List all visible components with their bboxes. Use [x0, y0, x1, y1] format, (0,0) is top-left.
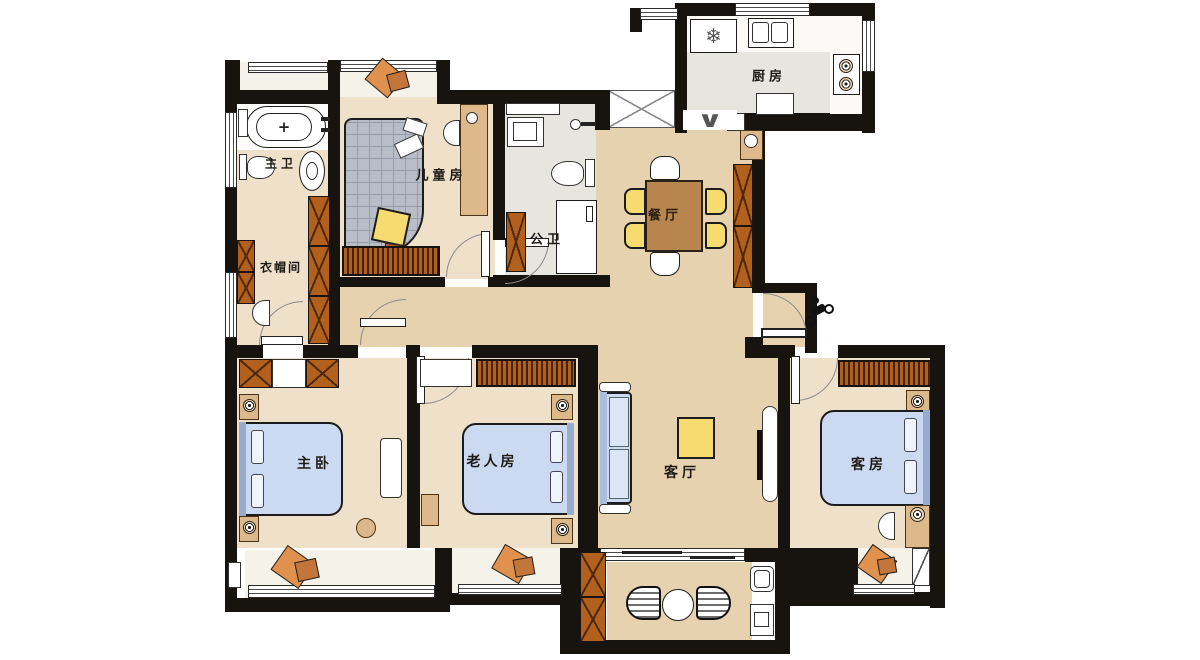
snowflake-icon: ❄ [705, 24, 722, 48]
desk-lamp-icon [466, 112, 478, 124]
kids-wardrobe [342, 246, 440, 276]
room-label-guest-room: 客房 [851, 454, 887, 474]
kids-bed-pillow [371, 207, 411, 247]
dining-chair [650, 252, 680, 276]
balcony-cabinet [580, 552, 606, 597]
sofa-armrest [599, 504, 631, 514]
stool [356, 518, 376, 538]
wardrobe-cabinet [308, 296, 330, 344]
bed-headboard [239, 422, 246, 516]
bay-cushion [877, 557, 898, 576]
room-label-public-bath: 公卫 [530, 229, 564, 248]
window-closet [225, 272, 237, 338]
wall-segment [493, 103, 505, 240]
room-label-kitchen: 厨房 [752, 66, 786, 85]
wardrobe-cabinet [308, 246, 330, 296]
floor-plan: ∨ + ❄ [0, 0, 1200, 660]
balcony-table [662, 589, 694, 621]
closet-door-leaf [261, 336, 303, 345]
scooter-icon [806, 316, 816, 326]
guest-bay-fixed-glass [912, 548, 930, 586]
tv-icon [757, 430, 762, 480]
bathtub-basin: + [256, 113, 312, 141]
wall-segment [790, 548, 858, 594]
burner-icon [839, 59, 853, 73]
room-label-living: 客厅 [664, 462, 700, 482]
lamp-icon [556, 523, 569, 536]
washer-drum [754, 570, 770, 588]
wall-segment [578, 345, 598, 548]
wall-segment [437, 60, 450, 104]
window-kitchen-top [735, 3, 810, 16]
shower-control [586, 206, 593, 222]
tv-console [762, 406, 778, 502]
bath-shelf [238, 109, 248, 137]
lamp-icon [243, 521, 256, 534]
wall-segment [838, 345, 945, 358]
sink-basin [513, 122, 537, 141]
wall-segment [560, 548, 580, 648]
bed-pillow [251, 430, 264, 464]
window-master-bay [248, 585, 435, 598]
coffee-table [677, 417, 715, 459]
wardrobe-cabinet [306, 359, 339, 388]
room-label-master-bath: 主卫 [265, 155, 297, 172]
fridge-icon: ❄ [690, 19, 737, 53]
bath-cabinet [506, 212, 526, 272]
bay-cushion [513, 556, 536, 577]
dresser [380, 438, 402, 498]
guest-door-leaf [791, 356, 800, 404]
radiator [228, 562, 241, 588]
master-door-leaf [360, 318, 406, 327]
sofa-cushion [609, 449, 629, 499]
dining-tall-cabinet [733, 164, 753, 226]
window-kitchen-right [862, 20, 875, 72]
tub-faucet-icon [321, 128, 330, 132]
cabinet [420, 359, 472, 387]
wall-segment [437, 90, 597, 104]
bath-shelf [506, 103, 560, 115]
bed-headboard [923, 410, 930, 506]
tub-faucet-icon [321, 117, 330, 121]
balcony-chair [626, 586, 661, 620]
wall-segment [225, 90, 340, 104]
room-label-master-bedroom: 主卧 [297, 453, 333, 473]
slider-handle [622, 551, 682, 554]
plant-icon [744, 134, 758, 148]
wardrobe-cabinet [237, 240, 255, 272]
folding-door-glyph: ∨ [697, 108, 724, 133]
room-label-elderly-room: 老人房 [467, 451, 518, 471]
toilet-tank [239, 154, 247, 180]
window-elderly-bay [458, 584, 562, 595]
kitchen-folding-door: ∨ [683, 110, 737, 130]
bed-pillow [550, 431, 563, 463]
wardrobe [476, 359, 576, 387]
toilet [551, 161, 584, 186]
wardrobe-cabinet [237, 272, 255, 304]
bed-headboard [567, 423, 574, 515]
bed-pillow [904, 460, 917, 494]
scooter-icon [812, 297, 819, 304]
ac-shaft [608, 90, 675, 128]
wall-segment [303, 345, 358, 358]
dining-chair [705, 222, 727, 249]
room-label-closet: 衣帽间 [260, 259, 302, 276]
burner-icon [839, 77, 853, 91]
window-guest-bay [853, 584, 915, 595]
wall-segment [778, 345, 790, 560]
bed-pillow [251, 474, 264, 508]
lamp-icon [243, 399, 256, 412]
sofa-armrest [599, 382, 631, 392]
entrance-door-leaf [761, 328, 807, 338]
dining-chair [705, 188, 727, 215]
dining-tall-cabinet [733, 226, 753, 288]
balcony-chair [696, 586, 731, 620]
wall-segment [225, 598, 450, 612]
wall-segment [225, 345, 263, 358]
wall-segment [328, 60, 340, 104]
wardrobe-cabinet [272, 359, 306, 388]
balcony-cabinet [580, 597, 606, 642]
drain-icon: + [278, 118, 291, 136]
kids-door-leaf [481, 231, 490, 277]
sink-basin [306, 162, 318, 180]
wall-segment [225, 60, 240, 92]
wall-segment [930, 345, 945, 608]
dining-chair [624, 188, 646, 215]
bed-pillow [550, 471, 563, 503]
wall-segment [435, 548, 452, 598]
wardrobe-cabinet [308, 196, 330, 246]
dining-chair [650, 156, 680, 180]
toilet-tank [585, 159, 595, 187]
wall-segment [330, 277, 445, 287]
bed-pillow [904, 418, 917, 452]
room-label-dining: 餐厅 [648, 205, 682, 224]
room-label-kids-room: 儿童房 [415, 165, 466, 184]
wardrobe [838, 360, 932, 387]
sink-basin [771, 22, 788, 43]
lamp-icon [910, 507, 925, 522]
wardrobe-cabinet [239, 359, 272, 388]
sofa-back [600, 392, 607, 504]
wall-segment [560, 640, 790, 654]
lamp-icon [911, 395, 924, 408]
wall-segment [488, 277, 505, 287]
wall-segment [472, 345, 595, 358]
sofa-cushion [609, 397, 629, 447]
window-master-bath [225, 112, 237, 188]
lamp-icon [556, 399, 569, 412]
wall-segment [745, 548, 778, 562]
dining-chair [624, 222, 646, 249]
slider-handle [690, 556, 735, 559]
sink-basin [754, 612, 769, 627]
shower-arm-icon [581, 122, 596, 126]
window-shaft [640, 8, 678, 20]
side-table [421, 494, 439, 526]
sink-basin [752, 22, 769, 43]
wall-segment [595, 90, 610, 130]
shower-head-icon [570, 119, 581, 130]
window-master-bath-bay [248, 62, 328, 73]
kitchen-island-cabinet [756, 93, 794, 115]
window-balcony-slider [600, 548, 745, 561]
